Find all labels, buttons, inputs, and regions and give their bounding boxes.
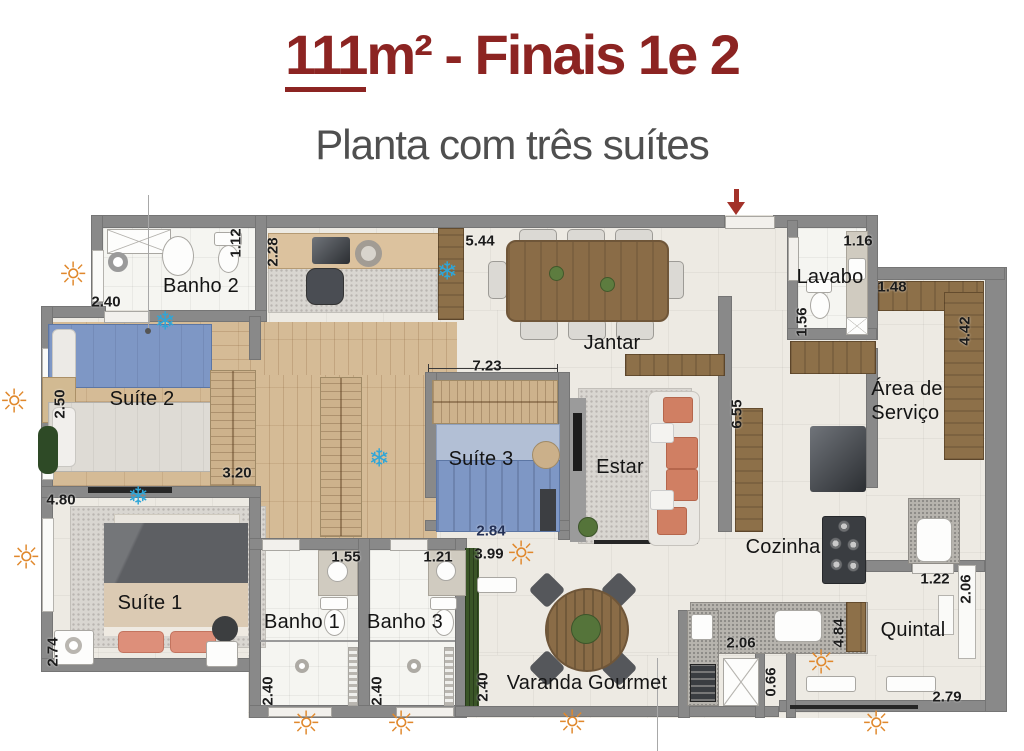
dining-chair xyxy=(520,319,558,340)
sun-icon: ☼ xyxy=(506,537,536,570)
dimension-label: 2.79 xyxy=(932,689,961,706)
dimension-label: 1.16 xyxy=(843,233,872,250)
sun-icon: ☼ xyxy=(557,706,587,739)
varanda-plant xyxy=(571,614,601,644)
dimension-label: 1.56 xyxy=(794,307,811,336)
dimension-label: 2.40 xyxy=(369,676,386,705)
tanque-sink xyxy=(916,518,952,562)
wall-suite2-right-stub xyxy=(249,316,261,360)
table-plant xyxy=(600,277,615,292)
dimension-label: 3.99 xyxy=(474,546,503,563)
floor-plan-page: 111m² - Finais 1e 2 Planta com três suít… xyxy=(0,0,1024,751)
servico-shelf xyxy=(790,341,876,374)
sofa-cushion xyxy=(657,507,687,535)
dimension-label: 6.55 xyxy=(729,399,746,428)
quintal-sill xyxy=(790,705,918,709)
entry-arrow-icon xyxy=(727,202,745,215)
sun-icon: ☼ xyxy=(58,258,88,291)
wall-varanda-bottom xyxy=(455,706,779,717)
floor-plan: Banho 2Suíte 2Suíte 1Banho 1Banho 3Suíte… xyxy=(0,0,1024,751)
corridor-closet xyxy=(320,377,362,537)
dimension-label: 1.12 xyxy=(228,228,245,257)
dimension-label: 4.42 xyxy=(957,316,974,345)
office-lamp xyxy=(355,240,382,267)
entry-door xyxy=(725,216,775,229)
dimension-label: 2.50 xyxy=(52,389,69,418)
entry-arrow-stem xyxy=(734,189,739,202)
suite3-wardrobe xyxy=(432,380,558,424)
banho2-door xyxy=(104,311,150,323)
dimension-label: 1.22 xyxy=(920,571,949,588)
room-label-cozinha: Cozinha xyxy=(746,535,821,559)
snowflake-icon: ❄ xyxy=(128,484,149,509)
estar-plant xyxy=(578,517,598,537)
dimension-label: 1.48 xyxy=(877,279,906,296)
sun-icon: ☼ xyxy=(386,707,416,740)
banho1-shower-line xyxy=(260,640,358,642)
lavabo-box xyxy=(846,317,868,335)
banho1-drain xyxy=(295,659,309,673)
office-chair xyxy=(306,268,344,305)
banho3-shower-line xyxy=(370,640,455,642)
dimension-label: 2.40 xyxy=(475,672,492,701)
island-sink xyxy=(774,610,822,642)
suite1-window xyxy=(42,518,54,612)
sofa-pillow xyxy=(650,423,674,443)
dimension-tick xyxy=(428,364,429,372)
dimension-label: 0.66 xyxy=(763,667,780,696)
floor-hall-wood xyxy=(250,322,457,378)
grill-sink xyxy=(691,614,713,640)
banho2-shower-head xyxy=(108,252,128,272)
room-label-suite-2: Suíte 2 xyxy=(110,387,175,411)
suite1-side-table xyxy=(206,641,238,667)
lavabo-toilet-bowl xyxy=(810,292,830,319)
room-label-banho-1: Banho 1 xyxy=(264,610,340,634)
grill xyxy=(690,664,716,702)
tv xyxy=(573,413,582,471)
island-counter-end xyxy=(846,602,866,652)
dimension-label: 4.80 xyxy=(46,492,75,509)
suite2-pillow xyxy=(52,329,76,383)
dimension-label: 2.06 xyxy=(958,574,975,603)
banho1-door xyxy=(262,539,300,551)
shaft xyxy=(723,658,759,706)
banho3-drain xyxy=(407,659,421,673)
dimension-label: 2.06 xyxy=(726,635,755,652)
dimension-label: 7.23 xyxy=(472,358,501,375)
dimension-label: 2.40 xyxy=(91,294,120,311)
dimension-label: 2.40 xyxy=(260,676,277,705)
sun-icon: ☼ xyxy=(806,646,836,679)
room-label-estar: Estar xyxy=(596,455,644,479)
banho2-shower-box xyxy=(107,229,171,254)
room-label-area-de-servico: Área de Serviço xyxy=(871,377,942,425)
varanda-bench xyxy=(477,577,517,593)
quintal-sill-b xyxy=(886,676,936,692)
suite1-blanket xyxy=(104,523,248,583)
wall-banho2-right xyxy=(255,215,267,322)
suite1-pouf-right xyxy=(212,616,238,642)
snowflake-icon: ❄ xyxy=(369,446,390,471)
room-label-suite-3: Suíte 3 xyxy=(449,447,514,471)
room-label-varanda-gourmet: Varanda Gourmet xyxy=(507,671,668,695)
suite3-bench xyxy=(540,489,556,531)
leader-line xyxy=(148,195,149,330)
wall-right xyxy=(985,267,1007,712)
dining-table xyxy=(506,240,669,322)
dimension-label: 3.20 xyxy=(222,465,251,482)
snowflake-icon: ❄ xyxy=(155,309,176,334)
table-plant xyxy=(549,266,564,281)
banho1-towel xyxy=(348,647,358,706)
room-label-banho-2: Banho 2 xyxy=(163,274,239,298)
room-label-jantar: Jantar xyxy=(584,331,641,355)
dimension-tick xyxy=(557,364,558,372)
dimension-label: 5.44 xyxy=(465,233,494,250)
suite3-side-table xyxy=(532,441,560,469)
room-label-quintal: Quintal xyxy=(881,618,946,642)
banho3-door xyxy=(390,539,428,551)
room-label-banho-3: Banho 3 xyxy=(367,610,443,634)
dimension-label: 2.84 xyxy=(476,523,505,540)
banho2-sink xyxy=(162,236,194,276)
estar-sideboard xyxy=(625,354,725,376)
office-monitor xyxy=(312,237,350,264)
sun-icon: ☼ xyxy=(11,541,41,574)
wall-cozinha-quintal-a xyxy=(866,560,912,572)
sofa-cushion xyxy=(663,397,693,423)
sofa-pillow xyxy=(650,490,674,510)
dimension-label: 1.21 xyxy=(423,549,452,566)
office-rug xyxy=(268,267,438,313)
room-label-lavabo: Lavabo xyxy=(797,265,864,289)
fridge xyxy=(810,426,866,492)
cooktop xyxy=(822,516,866,584)
suite1-pouf-ring xyxy=(65,637,82,654)
sun-icon: ☼ xyxy=(861,707,891,740)
dimension-label: 2.74 xyxy=(45,637,62,666)
dining-chair xyxy=(488,261,507,299)
snowflake-icon: ❄ xyxy=(437,259,458,284)
suite2-bolster xyxy=(38,426,58,474)
sun-icon: ☼ xyxy=(291,707,321,740)
banho3-towel xyxy=(444,647,454,706)
dimension-label: 1.55 xyxy=(331,549,360,566)
wall-top-a xyxy=(91,215,725,228)
dimension-label: 2.28 xyxy=(265,237,282,266)
sun-icon: ☼ xyxy=(0,385,29,418)
leader-dot xyxy=(145,328,151,334)
room-label-suite-1: Suíte 1 xyxy=(118,591,183,615)
suite1-pillow xyxy=(118,631,164,653)
